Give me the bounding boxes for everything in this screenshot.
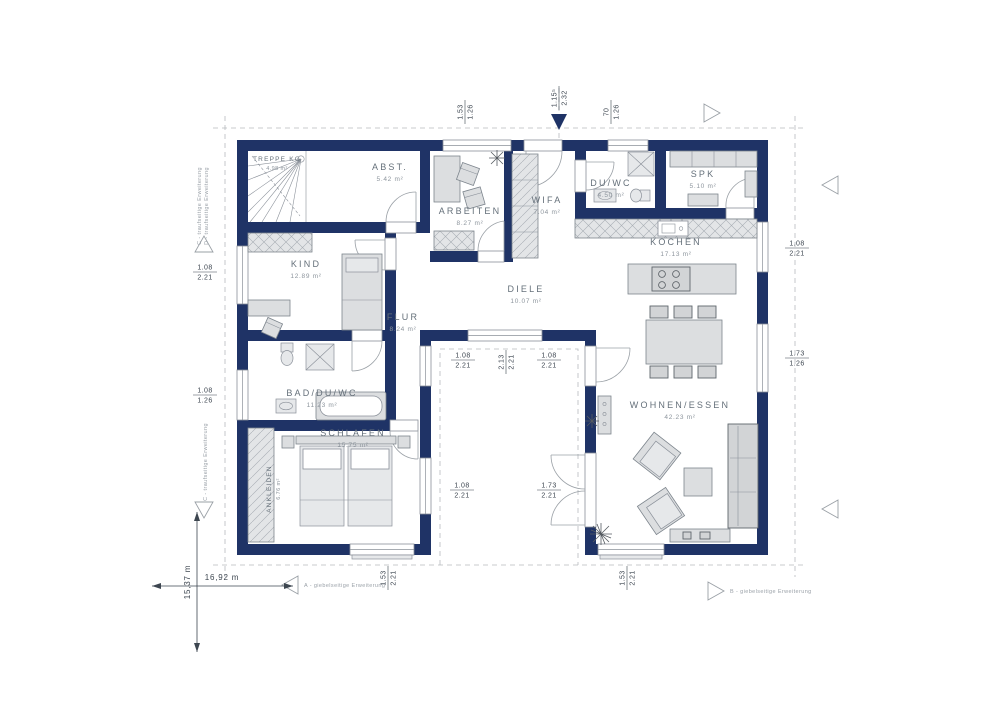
window xyxy=(757,222,768,272)
sideboard xyxy=(598,396,611,434)
extension-note-b: B - giebelseitige Erweiterung xyxy=(730,589,812,595)
room-label-diele: DIELE10.07 m² xyxy=(507,284,544,305)
door-opening xyxy=(386,222,416,233)
toilet-duwc xyxy=(631,189,651,202)
svg-text:C - traufseitige Erweiterung: C - traufseitige Erweiterung xyxy=(203,423,209,501)
room-label-abstell: ABST.5.42 m² xyxy=(372,162,408,183)
sink-bad xyxy=(276,399,296,413)
door-opening xyxy=(575,160,586,192)
room-label-kochen: KOCHEN17.13 m² xyxy=(650,237,702,258)
shower-bad xyxy=(306,344,334,370)
room-area: 5.10 m² xyxy=(690,183,717,190)
dimension-label: 1.081.26 xyxy=(193,388,217,405)
armchair xyxy=(633,432,681,480)
room-label-kind: KIND12.89 m² xyxy=(290,259,321,280)
room-name: BAD/DU/WC xyxy=(286,388,357,398)
svg-text:C - traufseitige Erweiterung: C - traufseitige Erweiterung xyxy=(197,167,203,245)
armchair xyxy=(637,487,684,534)
window xyxy=(608,140,648,151)
svg-text:1.26: 1.26 xyxy=(468,104,475,119)
shower-duwc xyxy=(628,152,654,176)
svg-text:1.08: 1.08 xyxy=(454,483,469,490)
room-name: FLUR xyxy=(387,312,419,322)
floor-plan-drawing: TREPPE KG4.98 m² ABST.5.42 m² ARBEITEN8.… xyxy=(0,0,1000,707)
dining-table xyxy=(646,306,722,378)
svg-text:2.21: 2.21 xyxy=(197,275,212,282)
door-swing-abstell xyxy=(386,192,416,222)
dimension-label: 1.082.21 xyxy=(537,353,561,370)
coffee-table xyxy=(684,468,712,496)
entrance-door-opening xyxy=(524,140,562,151)
svg-text:D - traufseitige Erweiterung: D - traufseitige Erweiterung xyxy=(204,167,210,245)
door-opening xyxy=(385,238,396,270)
floor-plan-page: TREPPE KG4.98 m² ABST.5.42 m² ARBEITEN8.… xyxy=(0,0,1000,707)
vertical-scale-bar: 15,37 m xyxy=(183,512,200,652)
svg-text:2.21: 2.21 xyxy=(455,363,470,370)
kitchen-island xyxy=(628,264,736,294)
svg-text:2.21: 2.21 xyxy=(454,493,469,500)
terrace-door-opening xyxy=(420,458,431,514)
dimension-label: 1.082.21 xyxy=(451,353,475,370)
svg-text:15,37 m: 15,37 m xyxy=(183,565,192,600)
svg-text:1.53: 1.53 xyxy=(458,104,465,119)
svg-text:1.26: 1.26 xyxy=(789,361,804,368)
door-swing-wohnen xyxy=(596,348,630,382)
room-area: 11.23 m² xyxy=(307,402,338,409)
svg-text:1.08: 1.08 xyxy=(197,265,212,272)
door-opening xyxy=(585,346,596,386)
dimension-label: 1.15⁵2.32 xyxy=(552,86,569,110)
room-name: KOCHEN xyxy=(650,237,702,247)
window xyxy=(237,370,248,420)
courtyard-roof-line xyxy=(440,349,578,565)
room-area: 10.07 m² xyxy=(510,298,541,305)
svg-text:1.26: 1.26 xyxy=(614,104,621,119)
extension-marker-icon xyxy=(822,176,838,194)
extension-note-a: A - giebelseitige Erweiterung xyxy=(304,583,385,589)
door-opening xyxy=(390,420,418,431)
room-name: DU/WC xyxy=(590,178,632,188)
svg-text:1.08: 1.08 xyxy=(197,388,212,395)
svg-text:2.21: 2.21 xyxy=(541,363,556,370)
room-area: 4.98 m² xyxy=(266,166,287,172)
room-label-wohnen-essen: WOHNEN/ESSEN42.23 m² xyxy=(630,400,730,421)
dimension-label: 1.082.21 xyxy=(450,483,474,500)
room-area: 17.13 m² xyxy=(660,251,691,258)
room-name: SPK xyxy=(691,169,716,179)
bed-kind xyxy=(342,254,382,330)
window xyxy=(443,140,511,151)
svg-text:1.08: 1.08 xyxy=(789,241,804,248)
svg-text:1.53: 1.53 xyxy=(620,570,627,585)
wardrobe-kind xyxy=(248,233,312,252)
svg-text:1.73: 1.73 xyxy=(789,351,804,358)
window xyxy=(350,544,414,559)
extension-note-left-bottom: C - traufseitige Erweiterung xyxy=(203,423,209,501)
horizontal-scale-bar: 16,92 m xyxy=(152,573,293,589)
double-bed xyxy=(282,436,410,526)
french-door-opening xyxy=(585,453,596,527)
room-name: WOHNEN/ESSEN xyxy=(630,400,730,410)
plant-icon xyxy=(489,150,505,166)
extension-marker-icon xyxy=(708,582,724,600)
door-opening xyxy=(478,251,504,262)
room-area: 15.75 m² xyxy=(337,442,368,449)
dimension-label: 1.731.26 xyxy=(785,351,809,368)
dimension-label: 1.082.21 xyxy=(785,241,809,258)
plant-icon xyxy=(590,523,612,545)
room-area: 42.23 m² xyxy=(664,414,695,421)
svg-text:1.73: 1.73 xyxy=(541,483,556,490)
room-label-arbeiten: ARBEITEN8.27 m² xyxy=(439,206,502,227)
extension-note-left-top: C - traufseitige ErweiterungD - traufsei… xyxy=(197,167,210,245)
toilet-bad xyxy=(281,343,293,366)
room-area: 8.24 m² xyxy=(390,326,417,333)
dimension-label: 1.732.21 xyxy=(537,483,561,500)
svg-text:1.15⁵: 1.15⁵ xyxy=(552,89,559,108)
window xyxy=(237,246,248,304)
room-name: DIELE xyxy=(507,284,544,294)
room-name: ABST. xyxy=(372,162,408,172)
room-area: 7.04 m² xyxy=(534,209,561,216)
dimension-label: 1.532.21 xyxy=(620,566,637,590)
room-area: 6.76 m² xyxy=(276,478,282,499)
room-name: KIND xyxy=(291,259,321,269)
svg-text:70: 70 xyxy=(604,108,611,117)
svg-text:1.08: 1.08 xyxy=(541,353,556,360)
svg-text:2.21: 2.21 xyxy=(789,251,804,258)
room-area: 12.89 m² xyxy=(290,273,321,280)
door-opening xyxy=(726,208,754,219)
room-name: TREPPE KG xyxy=(253,156,301,163)
kitchen-sink xyxy=(658,221,688,236)
svg-text:2.13: 2.13 xyxy=(499,354,506,369)
door-swing-bad xyxy=(352,341,382,371)
room-label-spk: SPK5.10 m² xyxy=(690,169,717,190)
svg-text:1.08: 1.08 xyxy=(455,353,470,360)
window xyxy=(598,544,664,559)
desk-arbeiten xyxy=(434,156,460,202)
dimension-label: 1.531.26 xyxy=(458,100,475,124)
dimension-label: 701.26 xyxy=(604,100,621,124)
dimension-label: 2.132.21 xyxy=(499,350,516,374)
room-name: SCHLAFEN xyxy=(320,428,386,438)
plant-icon xyxy=(585,414,599,428)
shelf-wifa xyxy=(512,154,538,258)
svg-text:1.26: 1.26 xyxy=(197,398,212,405)
svg-text:2.21: 2.21 xyxy=(391,570,398,585)
sofa xyxy=(728,424,758,528)
cabinet-arbeiten xyxy=(434,231,474,250)
svg-text:2.21: 2.21 xyxy=(541,493,556,500)
dimension-label: 1.082.21 xyxy=(193,265,217,282)
room-name: ANKLEIDEN xyxy=(266,465,273,513)
door-opening xyxy=(352,330,382,341)
tv-sideboard xyxy=(670,529,730,542)
window xyxy=(468,330,542,341)
desk-kind xyxy=(248,300,290,316)
room-name: WIFA xyxy=(532,195,563,205)
svg-text:16,92 m: 16,92 m xyxy=(205,573,240,582)
room-area: 8.27 m² xyxy=(457,220,484,227)
room-name: ARBEITEN xyxy=(439,206,502,216)
extension-marker-icon xyxy=(822,500,838,518)
room-area: 4.50 m² xyxy=(598,192,625,199)
room-area: 5.42 m² xyxy=(377,176,404,183)
svg-text:2.21: 2.21 xyxy=(630,570,637,585)
window xyxy=(757,324,768,392)
extension-marker-icon xyxy=(704,104,720,122)
svg-text:2.32: 2.32 xyxy=(562,90,569,105)
svg-text:2.21: 2.21 xyxy=(509,354,516,369)
window xyxy=(420,346,431,386)
